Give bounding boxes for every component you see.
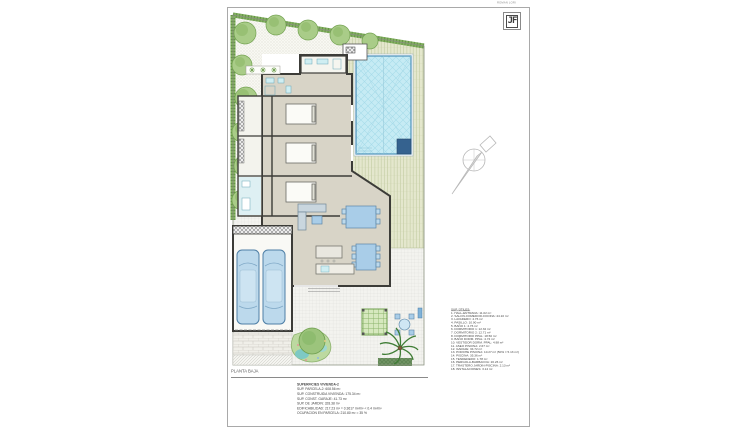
floor-label: PLANTA BAJA <box>231 369 258 374</box>
porch-dining-table <box>342 206 380 228</box>
car <box>263 250 285 324</box>
north-arrow <box>452 136 496 194</box>
driveway <box>233 333 292 365</box>
planters <box>246 66 280 74</box>
beds <box>286 104 316 202</box>
pergola <box>362 309 387 335</box>
pool-shower <box>418 308 422 318</box>
summary-line: OCUPACION EN PARCELA: 210.80 m² = 35 % <box>297 411 445 416</box>
surfaces-summary: SUPERFICIES VIVIENDA-2 SUP. PARCELA-2: 6… <box>297 382 445 416</box>
pool <box>354 54 413 156</box>
logo-caption: ROMAN LORI <box>497 1 538 4</box>
car <box>237 250 259 324</box>
room-area-legend: SUP. ÚTILES: 1. HALL-ENTRADA: 11.02 m² 2… <box>451 308 529 371</box>
plan-viewer: ROMAN LORI JF <box>0 0 756 432</box>
garage <box>233 226 292 331</box>
floor-label-underline <box>231 377 428 378</box>
dining-table <box>352 244 380 270</box>
legend-item: 18. INSTALACIONES: 3.14 m² <box>451 367 529 370</box>
plan-sheet: JF <box>227 7 530 427</box>
